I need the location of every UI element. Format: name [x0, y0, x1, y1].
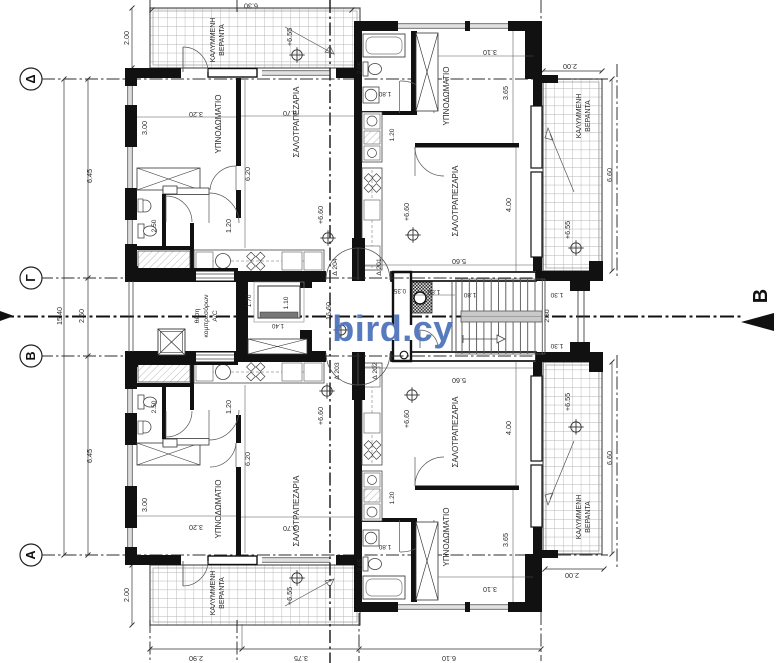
svg-text:2.00: 2.00	[122, 588, 131, 602]
svg-text:bird.cy: bird.cy	[332, 308, 454, 349]
svg-text:2.60: 2.60	[544, 309, 551, 322]
svg-text:3.70: 3.70	[283, 109, 297, 118]
svg-text:3.00: 3.00	[140, 498, 149, 512]
svg-text:3.65: 3.65	[501, 533, 510, 547]
svg-text:3.75: 3.75	[294, 654, 308, 663]
svg-text:3.20: 3.20	[189, 110, 203, 119]
svg-text:ΣΑΛΟΤΡΑΠΕΖΑΡΙΑ: ΣΑΛΟΤΡΑΠΕΖΑΡΙΑ	[292, 86, 301, 158]
svg-text:6.20: 6.20	[243, 167, 252, 181]
svg-text:ΣΑΛΟΤΡΑΠΕΖΑΡΙΑ: ΣΑΛΟΤΡΑΠΕΖΑΡΙΑ	[451, 165, 460, 237]
svg-text:ΣΑΛΟΤΡΑΠΕΖΑΡΙΑ: ΣΑΛΟΤΡΑΠΕΖΑΡΙΑ	[451, 396, 460, 468]
svg-text:+6.55: +6.55	[563, 221, 572, 239]
svg-text:1.20: 1.20	[224, 219, 233, 233]
svg-text:6.45: 6.45	[85, 169, 94, 183]
svg-text:+6.55: +6.55	[285, 587, 294, 605]
svg-text:ΣΑΛΟΤΡΑΠΕΖΑΡΙΑ: ΣΑΛΟΤΡΑΠΕΖΑΡΙΑ	[292, 475, 301, 547]
svg-text:1.30: 1.30	[550, 291, 563, 298]
svg-text:6.60: 6.60	[605, 168, 614, 182]
svg-text:3.10: 3.10	[483, 585, 497, 594]
svg-text:3.10: 3.10	[483, 48, 497, 57]
svg-text:6.45: 6.45	[85, 449, 94, 463]
svg-text:+6.55: +6.55	[563, 393, 572, 411]
svg-text:A/C: A/C	[212, 310, 219, 321]
svg-text:1.80: 1.80	[427, 288, 440, 295]
svg-text:+6.55: +6.55	[285, 28, 294, 46]
svg-text:15.40: 15.40	[55, 307, 64, 325]
svg-text:2.05: 2.05	[357, 558, 364, 571]
svg-text:5.60: 5.60	[452, 376, 466, 385]
svg-text:Δ 203: Δ 203	[334, 362, 341, 380]
svg-text:2.05: 2.05	[357, 61, 364, 74]
svg-text:1.70: 1.70	[246, 294, 253, 307]
svg-text:ΒΕΡΑΝΤΑ: ΒΕΡΑΝΤΑ	[585, 501, 592, 533]
svg-text:1.20: 1.20	[389, 128, 396, 141]
svg-text:ΚΑΛΥΜΜΕΝΗ: ΚΑΛΥΜΜΕΝΗ	[576, 94, 583, 139]
svg-text:ΒΕΡΑΝΤΑ: ΒΕΡΑΝΤΑ	[585, 100, 592, 132]
svg-text:Α: Α	[24, 550, 38, 559]
svg-text:1.10: 1.10	[283, 296, 290, 309]
svg-text:4.00: 4.00	[504, 421, 513, 435]
svg-text:6.60: 6.60	[605, 451, 614, 465]
svg-text:1.20: 1.20	[224, 400, 233, 414]
svg-text:1.30: 1.30	[550, 342, 563, 349]
svg-text:6.30: 6.30	[244, 2, 258, 11]
svg-text:4.00: 4.00	[504, 198, 513, 212]
svg-text:2.00: 2.00	[563, 62, 577, 71]
svg-text:1.80: 1.80	[463, 291, 476, 298]
svg-text:+6.60: +6.60	[402, 410, 411, 428]
svg-text:ΥΠΝΟΔΩΜΑΤΙΟ: ΥΠΝΟΔΩΜΑΤΙΟ	[214, 479, 223, 538]
svg-text:ΒΕΡΑΝΤΑ: ΒΕΡΑΝΤΑ	[219, 24, 226, 56]
svg-text:3.65: 3.65	[501, 86, 510, 100]
svg-text:5.60: 5.60	[452, 257, 466, 266]
svg-text:0.35: 0.35	[393, 287, 406, 294]
svg-text:6.10: 6.10	[442, 654, 456, 663]
svg-text:ΚΑΛΥΜΜΕΝΗ: ΚΑΛΥΜΜΕΝΗ	[576, 495, 583, 540]
svg-text:6.20: 6.20	[243, 452, 252, 466]
svg-text:ΥΠΝΟΔΩΜΑΤΙΟ: ΥΠΝΟΔΩΜΑΤΙΟ	[442, 66, 451, 125]
svg-text:ΚΑΛΥΜΜΕΝΗ: ΚΑΛΥΜΜΕΝΗ	[210, 18, 217, 63]
svg-text:1.40: 1.40	[271, 322, 284, 329]
svg-text:+6.60: +6.60	[316, 407, 325, 425]
svg-text:1.20: 1.20	[389, 491, 396, 504]
svg-text:Δ: Δ	[24, 74, 38, 83]
svg-text:κομπρεσόρων: κομπρεσόρων	[202, 294, 210, 338]
svg-text:2.00: 2.00	[565, 571, 579, 580]
svg-text:1.80: 1.80	[378, 90, 391, 97]
svg-text:Δ 201: Δ 201	[376, 258, 383, 276]
svg-text:+6.60: +6.60	[402, 203, 411, 221]
svg-text:2.00: 2.00	[122, 31, 131, 45]
svg-text:2.50: 2.50	[77, 309, 86, 323]
svg-text:Δ 202: Δ 202	[372, 362, 379, 380]
svg-text:2.50: 2.50	[151, 400, 158, 413]
svg-text:ΒΕΡΑΝΤΑ: ΒΕΡΑΝΤΑ	[219, 577, 226, 609]
svg-text:2.90: 2.90	[189, 654, 203, 663]
svg-text:3.20: 3.20	[189, 523, 203, 532]
svg-text:Β: Β	[750, 289, 772, 303]
svg-text:Β: Β	[24, 351, 38, 360]
svg-text:Δ 204: Δ 204	[332, 258, 339, 276]
svg-text:3.70: 3.70	[283, 524, 297, 533]
svg-text:ΥΠΝΟΔΩΜΑΤΙΟ: ΥΠΝΟΔΩΜΑΤΙΟ	[214, 94, 223, 153]
svg-text:ΥΠΝΟΔΩΜΑΤΙΟ: ΥΠΝΟΔΩΜΑΤΙΟ	[442, 507, 451, 566]
svg-text:θέση: θέση	[193, 308, 201, 323]
svg-text:ΚΑΛΥΜΜΕΝΗ: ΚΑΛΥΜΜΕΝΗ	[210, 571, 217, 616]
svg-text:+6.60: +6.60	[316, 206, 325, 224]
svg-text:3.00: 3.00	[140, 121, 149, 135]
svg-text:2.50: 2.50	[151, 219, 158, 232]
svg-text:Γ: Γ	[24, 274, 38, 282]
svg-text:1.80: 1.80	[378, 543, 391, 550]
